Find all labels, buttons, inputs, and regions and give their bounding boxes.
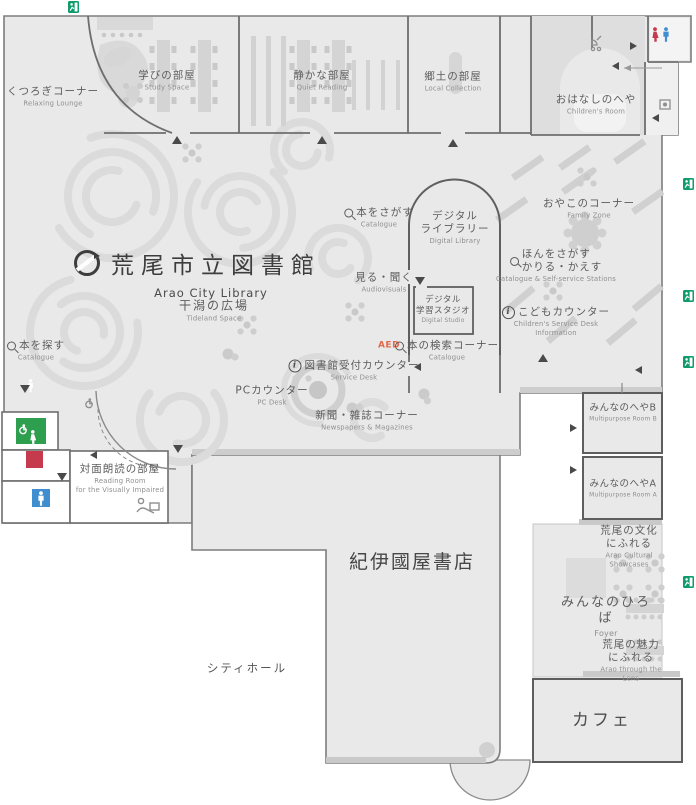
- emergency-exit-icon: [683, 178, 694, 190]
- local-collection-counter: [449, 52, 462, 94]
- multipurpose-room-a-box: [583, 457, 662, 519]
- floor-map: 荒尾市立図書館 Arao City Library 干潟の広場 Tideland…: [0, 0, 696, 805]
- bookstore-floor: [192, 455, 500, 763]
- entrance-column: [479, 742, 495, 758]
- door-gap: [416, 285, 427, 289]
- multipurpose-room-b-box: [583, 393, 662, 453]
- emergency-exit-icon: [68, 1, 79, 13]
- emergency-exit-icon: [683, 576, 694, 588]
- digital-studio-box: [414, 287, 473, 334]
- emergency-exit-icon: [683, 356, 694, 368]
- door-gap: [406, 270, 412, 284]
- south-entrance-bulge: [450, 760, 530, 800]
- male-toilet-room-icon: [32, 489, 50, 507]
- cafe-room: [533, 679, 682, 762]
- floor-plan-svg: [0, 0, 696, 805]
- emergency-exit-icon: [683, 290, 694, 302]
